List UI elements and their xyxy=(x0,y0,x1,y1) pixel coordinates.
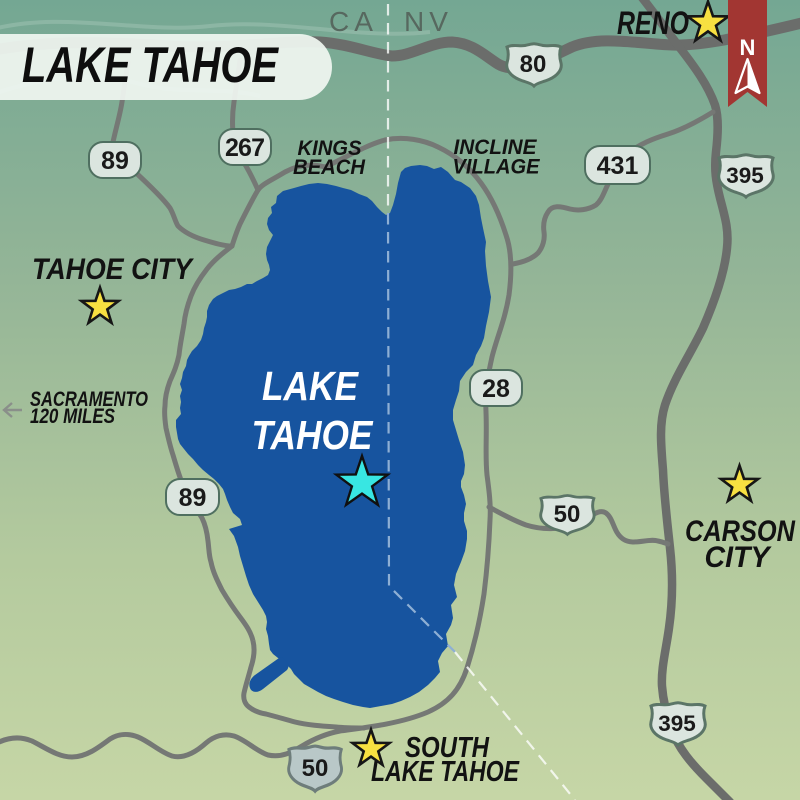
svg-text:50: 50 xyxy=(554,501,581,528)
svg-text:89: 89 xyxy=(101,147,129,175)
svg-text:LAKE TAHOE: LAKE TAHOE xyxy=(371,756,520,788)
svg-text:TAHOE: TAHOE xyxy=(252,412,374,458)
svg-text:50: 50 xyxy=(302,755,329,782)
svg-text:267: 267 xyxy=(225,134,265,162)
svg-text:CA: CA xyxy=(329,6,378,37)
svg-text:80: 80 xyxy=(520,51,547,78)
svg-text:NV: NV xyxy=(404,6,453,37)
svg-text:431: 431 xyxy=(597,152,639,180)
svg-text:N: N xyxy=(740,35,756,60)
svg-text:28: 28 xyxy=(482,375,510,403)
svg-text:VILLAGE: VILLAGE xyxy=(453,156,541,179)
svg-text:395: 395 xyxy=(658,711,696,736)
svg-text:89: 89 xyxy=(179,484,207,512)
svg-text:TAHOE CITY: TAHOE CITY xyxy=(32,253,195,286)
svg-text:CITY: CITY xyxy=(705,541,773,574)
svg-text:LAKE TAHOE: LAKE TAHOE xyxy=(22,37,279,93)
svg-text:LAKE: LAKE xyxy=(262,363,359,409)
svg-text:RENO: RENO xyxy=(617,5,689,41)
svg-text:395: 395 xyxy=(726,163,764,188)
svg-text:BEACH: BEACH xyxy=(293,156,366,179)
svg-text:120 MILES: 120 MILES xyxy=(30,405,115,428)
